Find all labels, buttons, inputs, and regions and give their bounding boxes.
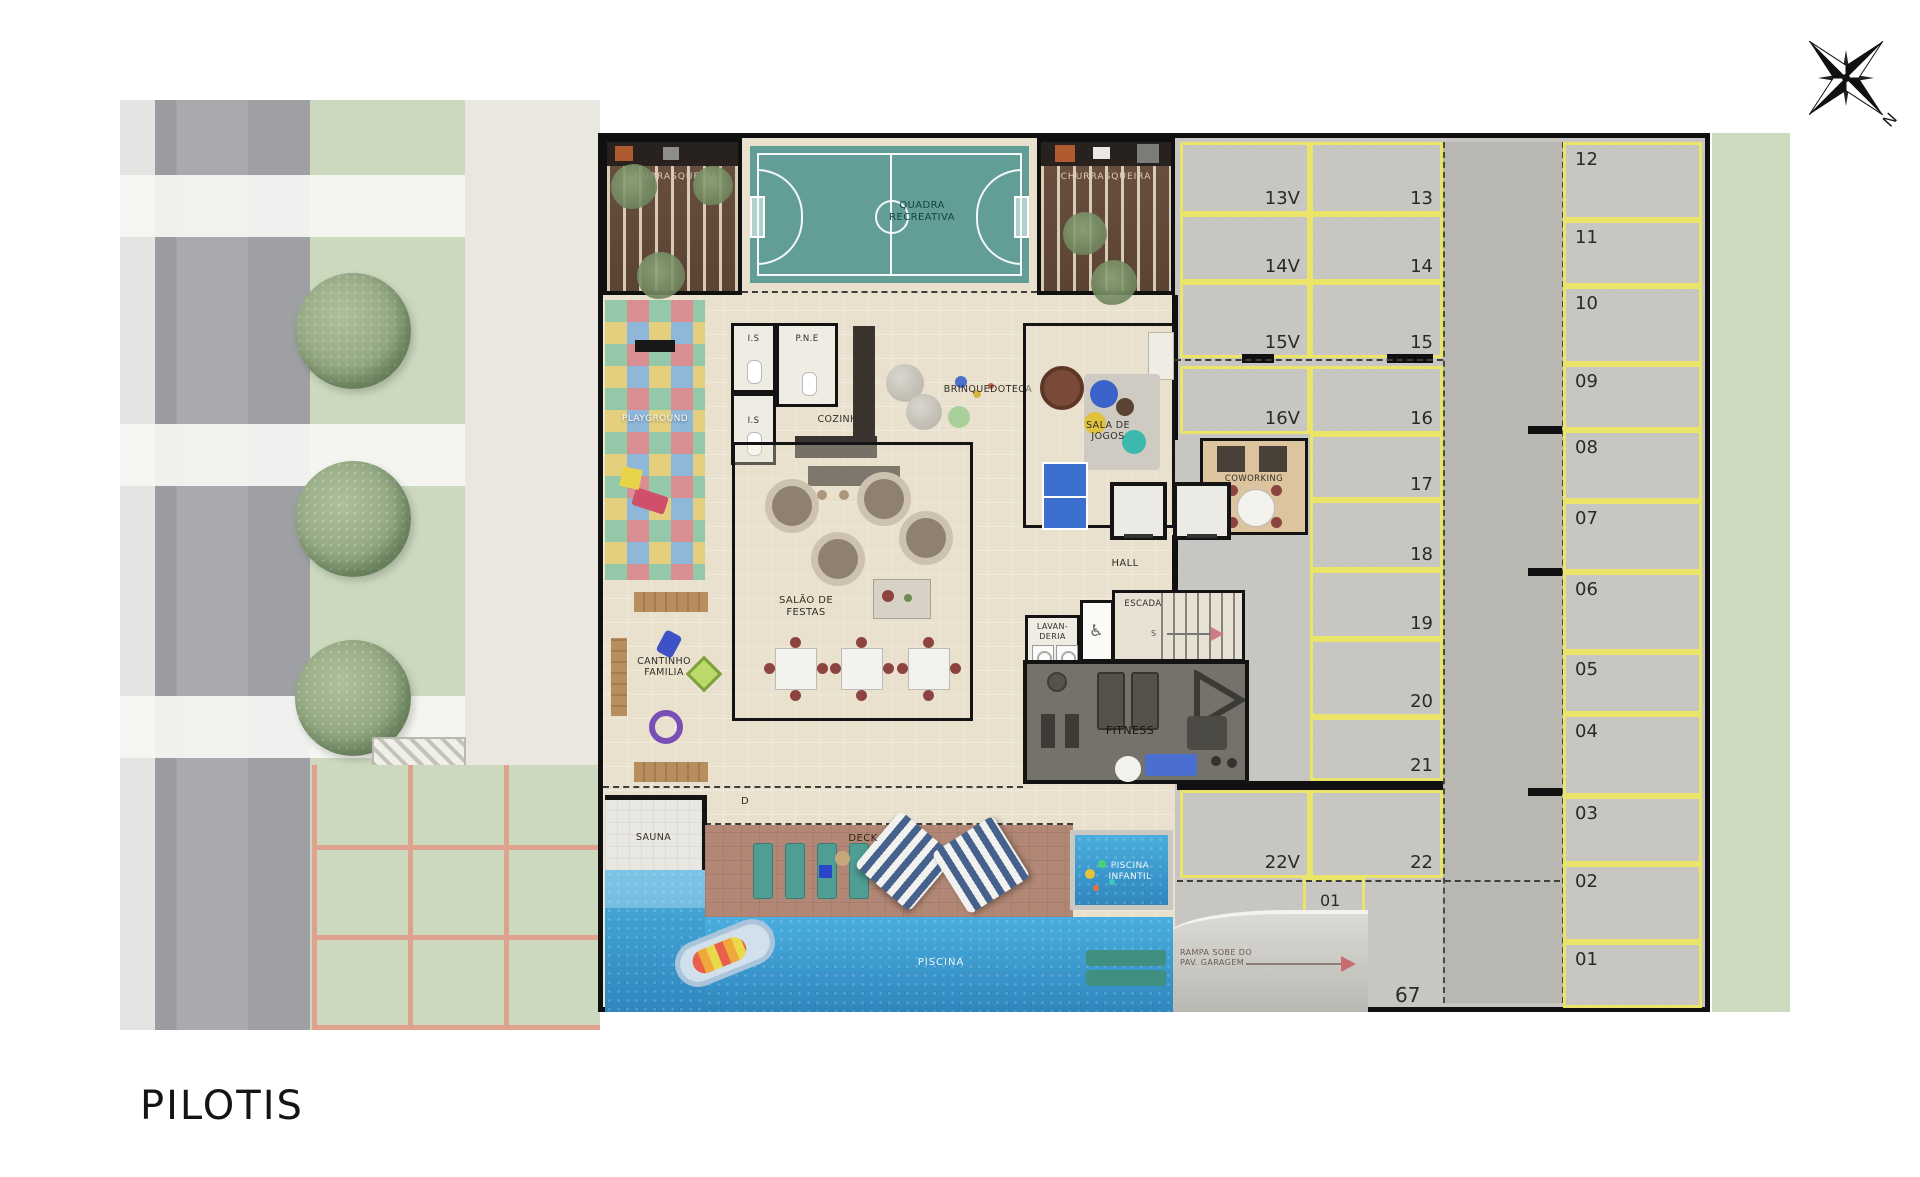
- parking-stall: 22: [1310, 790, 1443, 878]
- tree: [295, 273, 411, 389]
- foliage: [693, 166, 733, 206]
- restroom-pne: P.N.E: [776, 323, 838, 407]
- lounger: [753, 843, 773, 899]
- side-table: [835, 851, 850, 866]
- fitness-room: FITNESS: [1023, 660, 1249, 784]
- ramp-label: RAMPA SOBE DO PAV. GARAGEM: [1180, 948, 1252, 967]
- room-label-cozinha: COZINHA: [786, 414, 896, 425]
- room-label-pne: P.N.E: [779, 334, 835, 344]
- medicine-ball-icon: [1047, 672, 1067, 692]
- coverage-dashed-line: [742, 291, 1037, 293]
- parking-stall: 21: [1310, 717, 1443, 781]
- parking-stall: 16: [1310, 366, 1443, 434]
- chair: [897, 663, 908, 674]
- parking-stall: 10: [1563, 286, 1702, 364]
- stair-start-label: S: [1151, 629, 1156, 639]
- room-label-escada: ESCADA: [1117, 599, 1169, 609]
- square-table: [775, 648, 817, 690]
- stair-treads: [1161, 593, 1242, 659]
- parking-stall: 11: [1563, 220, 1702, 286]
- chair: [1271, 485, 1282, 496]
- food-icons: [882, 590, 894, 602]
- elevator-door: [1124, 534, 1153, 538]
- compass-north-label: N: [1879, 109, 1901, 131]
- churrasqueira-right-area: CHURRASQUEIRA: [1037, 138, 1175, 295]
- chair: [830, 663, 841, 674]
- grill-counter: [607, 142, 738, 166]
- tree: [295, 461, 411, 577]
- compass-rose: N: [1788, 20, 1913, 150]
- pool-main: PISCINA: [705, 917, 1173, 1012]
- ramp-arrow-line: [1246, 963, 1343, 965]
- foliage: [1091, 260, 1137, 306]
- toilet-icon: [747, 360, 762, 384]
- coverage-dashed-line: [1175, 359, 1443, 361]
- umbrella-icon: [931, 815, 1030, 914]
- floorplan-page: CHURRASQUEIRA QUADRA RECREATIVA: [0, 0, 1920, 1177]
- parking-stall: 01: [1303, 878, 1365, 914]
- pool-shallow: [605, 870, 705, 908]
- parking-stall: 19: [1310, 570, 1443, 639]
- bench-press-icon: [1187, 716, 1227, 750]
- exercise-mat-icon: [1145, 754, 1197, 776]
- towel-icon: [819, 865, 832, 878]
- coverage-dashed-line: [603, 786, 1023, 788]
- lounger: [785, 843, 805, 899]
- parking-stall: 15: [1310, 282, 1443, 358]
- ping-pong-net: [1044, 496, 1086, 498]
- parking-stall: 06: [1563, 572, 1702, 652]
- elevator: [1173, 482, 1231, 540]
- churrasqueira-left-area: CHURRASQUEIRA: [603, 138, 742, 295]
- parking-stall: 01: [1563, 942, 1702, 1008]
- pool-deck: DECK: [705, 825, 1073, 917]
- beanbag-blue: [1090, 380, 1118, 408]
- round-table: [765, 479, 819, 533]
- parking-stall: 18: [1310, 500, 1443, 570]
- parking-stall: 04: [1563, 714, 1702, 796]
- ramp-arrow-icon: [1341, 956, 1356, 972]
- room-label-churrasqueira-right: CHURRASQUEIRA: [1041, 172, 1171, 183]
- chair: [764, 663, 775, 674]
- stairs: ESCADA S: [1112, 590, 1245, 662]
- section-marker-d: D: [741, 796, 749, 808]
- sink-icon: [663, 147, 679, 160]
- ping-pong-table-icon: [1042, 462, 1088, 530]
- toilet-icon: [802, 372, 817, 396]
- chair: [790, 637, 801, 648]
- wheelchair-icon: ♿: [1089, 621, 1103, 640]
- dumbbell-icons: [1211, 756, 1221, 766]
- desk-icon: [1217, 446, 1245, 472]
- room-label-hall: HALL: [1093, 558, 1157, 570]
- play-structure-icon: [635, 340, 675, 352]
- chair: [923, 690, 934, 701]
- bench: [634, 592, 708, 612]
- shelf-icon: [1148, 332, 1174, 380]
- parking-stall: 22V: [1180, 790, 1310, 878]
- desk-icon: [1259, 446, 1287, 472]
- counter-icon: [1137, 144, 1159, 163]
- game-table-icon: [1040, 366, 1084, 410]
- chair: [790, 690, 801, 701]
- room-label-fitness: FITNESS: [1085, 724, 1175, 737]
- room-label-is-bottom: I.S: [734, 416, 773, 426]
- treadmill-icon: [1097, 672, 1125, 730]
- exercise-ball-icon: [1115, 756, 1141, 782]
- parking-stall: 13V: [1180, 142, 1310, 214]
- room-label-salao-de-festas: SALÃO DE FESTAS: [761, 595, 851, 619]
- playground-mat: PLAYGROUND: [605, 300, 705, 580]
- parking-stall: 16V: [1180, 366, 1310, 434]
- round-table: [857, 472, 911, 526]
- parking-stall: 13: [1310, 142, 1443, 214]
- crosswalk-band: [120, 424, 465, 486]
- square-table: [908, 648, 950, 690]
- parking-stall-67-label: 67: [1395, 983, 1420, 1007]
- beanbag-brown: [1116, 398, 1134, 416]
- chair: [856, 690, 867, 701]
- coverage-dashed-line: [1177, 880, 1560, 882]
- street-road: [155, 100, 315, 1030]
- elevator: [1110, 482, 1167, 540]
- toy-ring-icon: [649, 710, 683, 744]
- parking-stall: 17: [1310, 434, 1443, 500]
- grill-icon: [1055, 145, 1075, 162]
- grass-strip-right: [1712, 133, 1790, 1012]
- elevator-door: [1187, 534, 1217, 538]
- stair-arrow-line: [1167, 633, 1213, 635]
- kids-pool: PISCINA INFANTIL: [1070, 830, 1173, 910]
- room-label-lavanderia: LAVAN- DERIA: [1028, 622, 1077, 641]
- weight-rack-icon: [1041, 714, 1055, 748]
- parking-stall: 14V: [1180, 214, 1310, 282]
- party-room: SALÃO DE FESTAS: [732, 442, 973, 721]
- room-label-cantinho-familia: CANTINHO FAMILIA: [615, 656, 713, 679]
- parking-stall: 09: [1563, 364, 1702, 430]
- parking-stall: 08: [1563, 430, 1702, 501]
- restroom-is-1: I.S: [731, 323, 776, 393]
- garage-ramp: RAMPA SOBE DO PAV. GARAGEM: [1168, 910, 1368, 1012]
- foliage: [637, 252, 685, 300]
- sauna-room: SAUNA: [605, 795, 707, 871]
- foliage: [1063, 212, 1107, 256]
- parking-stall: 15V: [1180, 282, 1310, 358]
- room-label-deck: DECK: [833, 833, 893, 845]
- room-label-playground: PLAYGROUND: [605, 414, 705, 425]
- room-label-piscina-infantil: PISCINA INFANTIL: [1091, 861, 1169, 883]
- building-plan: CHURRASQUEIRA QUADRA RECREATIVA: [598, 133, 1710, 1012]
- slide-icon: [631, 487, 669, 515]
- sidewalk-left: [120, 100, 155, 1030]
- permeable-pavers: [312, 765, 600, 1030]
- chair: [856, 637, 867, 648]
- parking-stall: 12: [1563, 142, 1702, 220]
- wall: [1528, 568, 1562, 576]
- meeting-table-icon: [1237, 489, 1275, 527]
- grill-icon: [615, 146, 633, 161]
- chair: [1271, 517, 1282, 528]
- stair-arrow-icon: [1211, 627, 1224, 641]
- chair: [950, 663, 961, 674]
- parking-stall: 14: [1310, 214, 1443, 282]
- goal-left-icon: [750, 196, 765, 238]
- grill-counter: [1041, 142, 1171, 166]
- parking-stall: 07: [1563, 501, 1702, 572]
- pouf-icon: [948, 406, 970, 428]
- buffet-table: [873, 579, 931, 619]
- parking-stall: 03: [1563, 796, 1702, 864]
- goal-right-icon: [1014, 196, 1029, 238]
- foliage: [611, 164, 657, 210]
- wall: [1528, 426, 1562, 434]
- wall: [1528, 788, 1562, 796]
- floor-title: PILOTIS: [140, 1083, 304, 1129]
- pool-steps: [1086, 950, 1166, 966]
- chair: [883, 663, 894, 674]
- room-label-quadra: QUADRA RECREATIVA: [852, 200, 992, 224]
- quadra-zone: QUADRA RECREATIVA: [742, 138, 1037, 295]
- chair: [923, 637, 934, 648]
- parking-stall: 05: [1563, 652, 1702, 714]
- beanbag: [906, 394, 942, 430]
- chair: [817, 663, 828, 674]
- grill-rack-icon: [1093, 147, 1110, 159]
- room-label-sauna: SAUNA: [605, 832, 702, 843]
- treadmill-icon: [1131, 672, 1159, 730]
- bench: [634, 762, 708, 782]
- round-table: [811, 532, 865, 586]
- room-label-sala-de-jogos: SALA DE JOGOS: [1068, 420, 1148, 443]
- room-label-is-top: I.S: [734, 334, 773, 344]
- room-label-piscina: PISCINA: [901, 957, 981, 969]
- float-stripes: [689, 934, 750, 977]
- play-pad-icon: [619, 466, 643, 490]
- parking-stall: 02: [1563, 864, 1702, 942]
- round-table: [899, 511, 953, 565]
- square-table: [841, 648, 883, 690]
- parking-stall: 20: [1310, 639, 1443, 717]
- accessible-wc: ♿: [1080, 600, 1114, 662]
- crosswalk-band: [120, 175, 465, 237]
